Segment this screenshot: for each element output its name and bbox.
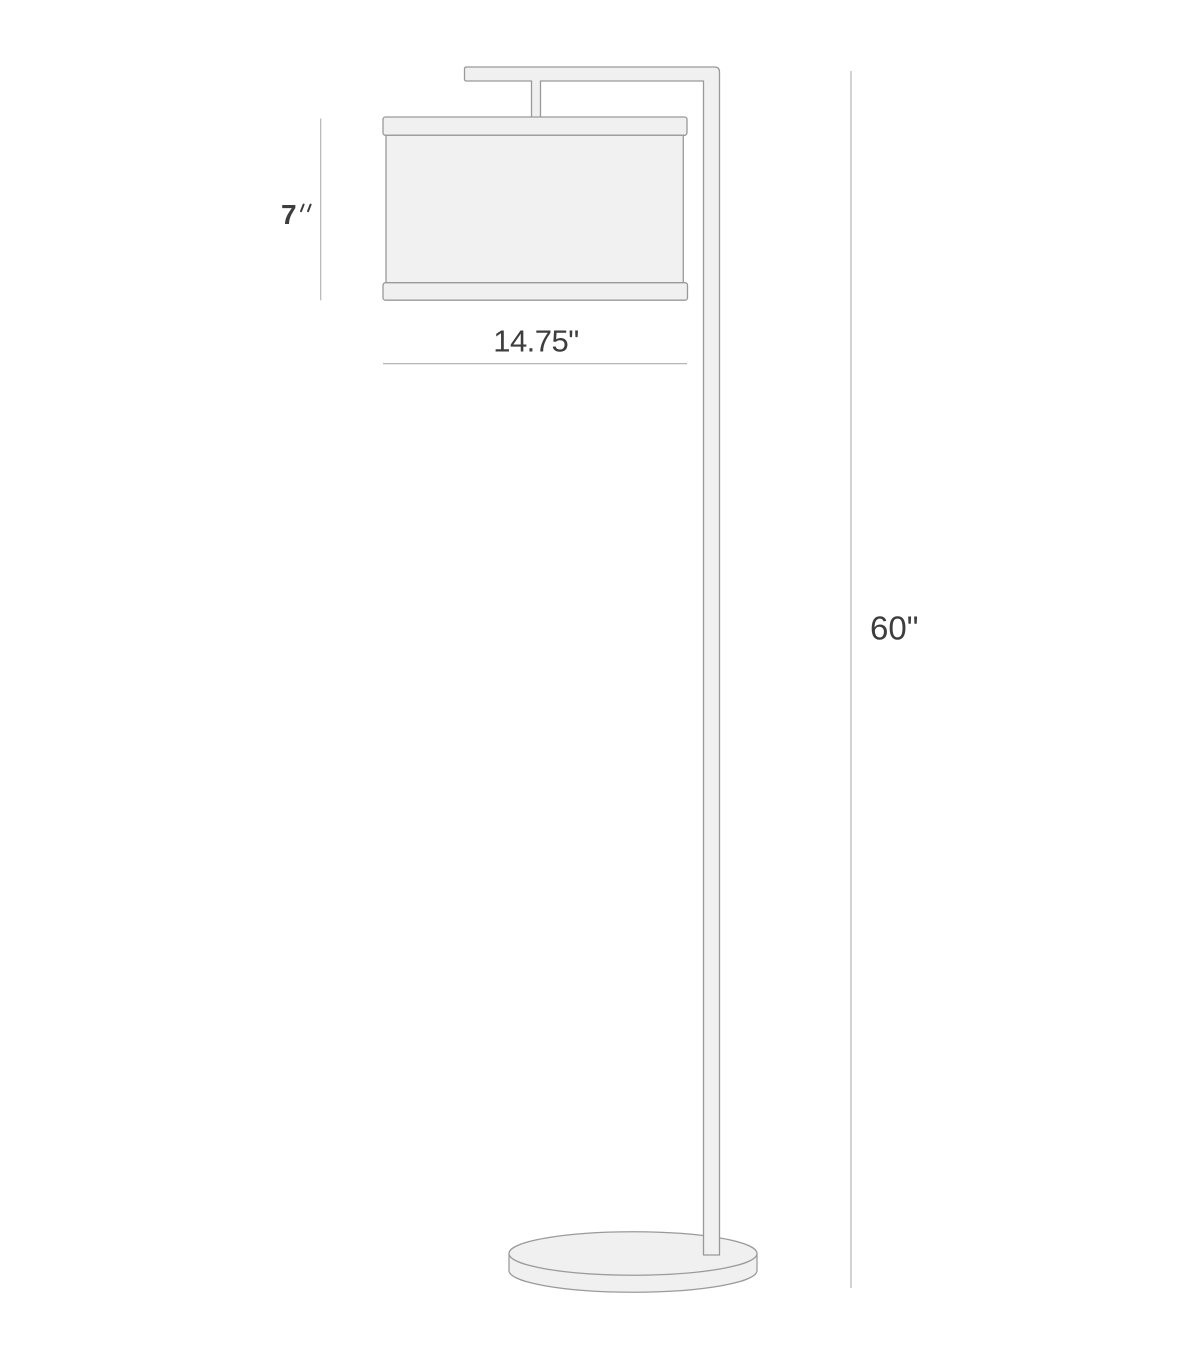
svg-text:60": 60"	[870, 610, 918, 647]
svg-text:7: 7	[281, 199, 297, 230]
svg-text:14.75": 14.75"	[493, 324, 579, 359]
